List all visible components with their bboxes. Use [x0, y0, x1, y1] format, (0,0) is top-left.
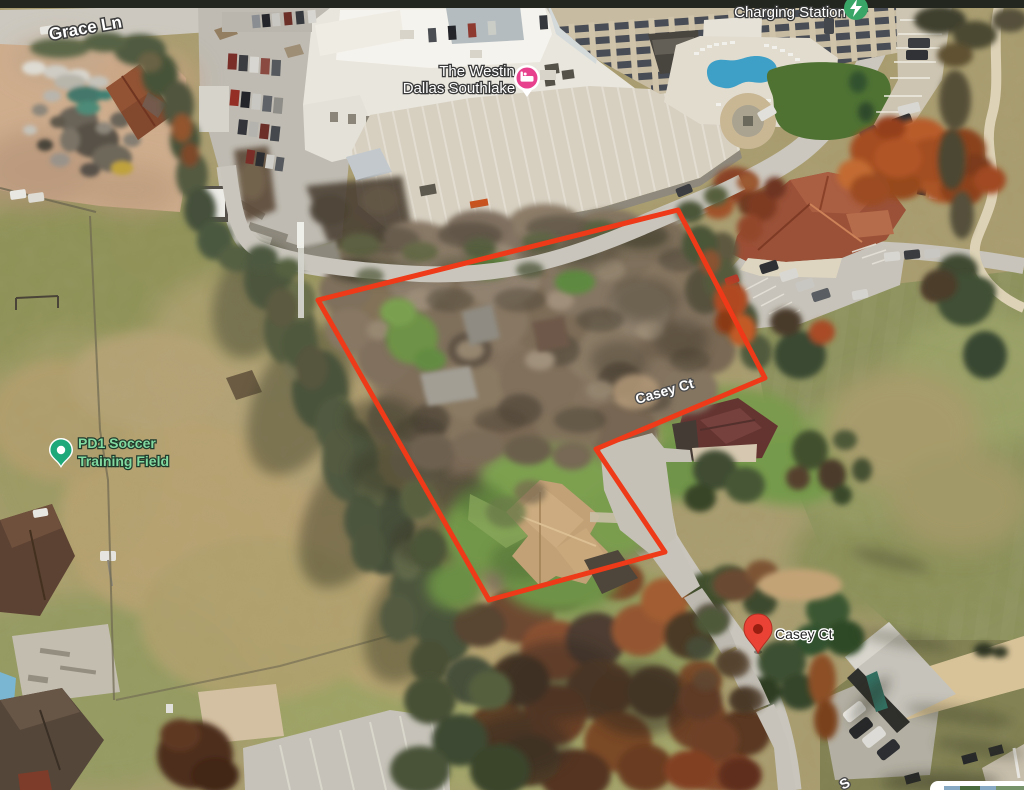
- svg-text:Training Field: Training Field: [78, 453, 169, 469]
- svg-text:Dallas Southlake: Dallas Southlake: [403, 80, 516, 97]
- svg-text:The Westin: The Westin: [439, 63, 515, 80]
- svg-text:Charging Station: Charging Station: [734, 4, 846, 21]
- svg-text:Casey Ct: Casey Ct: [775, 626, 833, 642]
- svg-text:PD1 Soccer: PD1 Soccer: [78, 435, 156, 451]
